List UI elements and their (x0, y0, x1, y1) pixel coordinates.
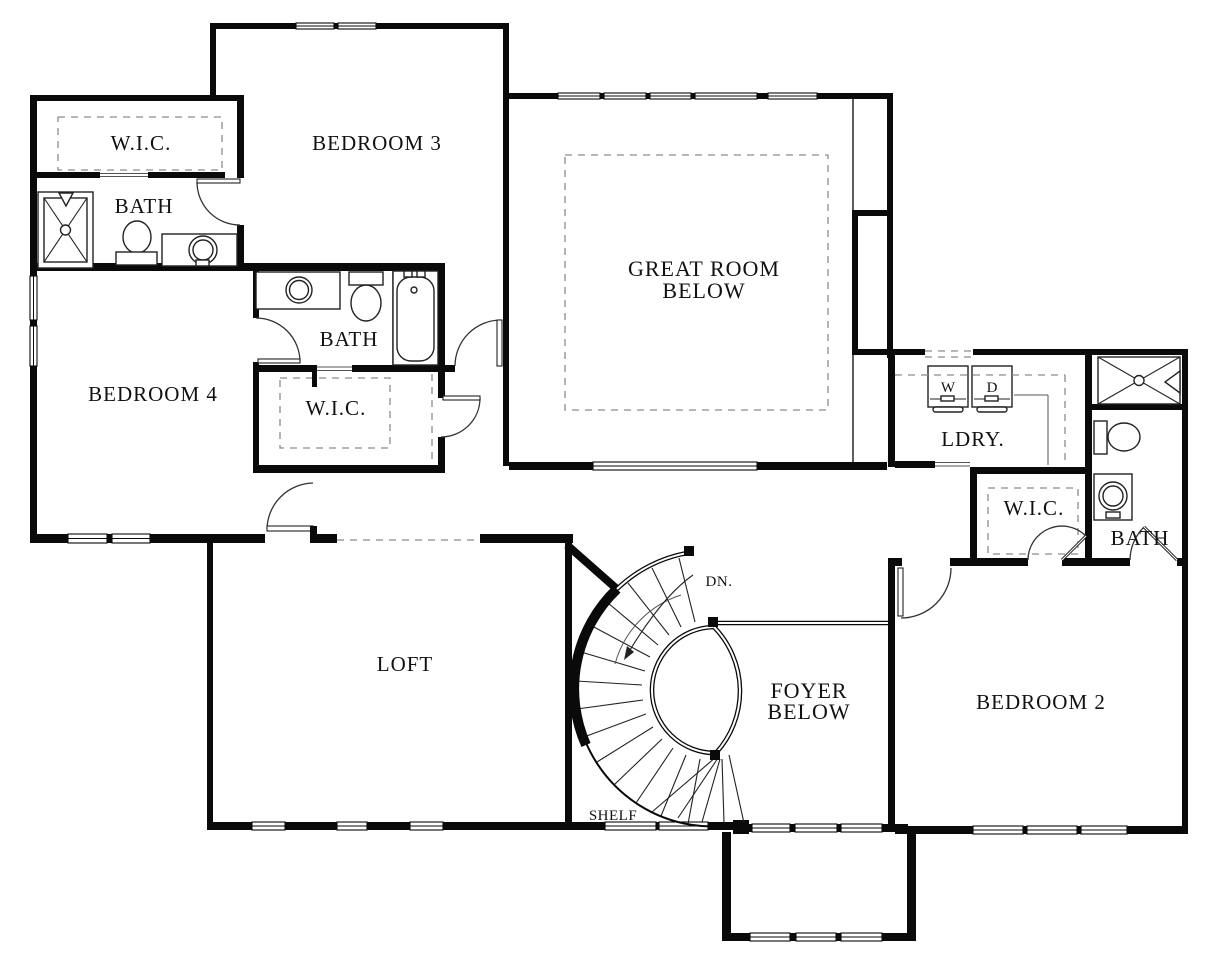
bathtub-icon (393, 271, 438, 365)
shower-right-icon (1098, 357, 1180, 404)
sink-top-left-icon (162, 234, 237, 266)
bay-windows (750, 933, 882, 941)
walls (30, 23, 1188, 941)
door-hall-by-tub (455, 320, 502, 366)
label-bath-right: BATH (1111, 526, 1170, 550)
label-washer: W (941, 380, 956, 396)
label-bedroom4: BEDROOM 4 (88, 382, 218, 406)
toilet-middle-icon (349, 272, 383, 321)
toilet-top-left-icon (116, 221, 157, 265)
label-bath-top-left: BATH (115, 194, 174, 218)
label-wic-middle: W.I.C. (306, 396, 367, 420)
stair-outer-arc (575, 553, 744, 827)
sink-right-icon (1094, 474, 1132, 520)
toilet-right-icon (1094, 421, 1140, 454)
label-shelf: SHELF (589, 808, 637, 824)
label-bedroom2: BEDROOM 2 (976, 690, 1106, 714)
door-loft-to-bedroom4 (267, 483, 317, 543)
label-laundry: LDRY. (941, 427, 1005, 451)
bedroom4-windows (30, 276, 150, 543)
label-foyer-line2: BELOW (767, 699, 850, 724)
label-loft: LOFT (377, 652, 434, 676)
label-great-room-line2: BELOW (662, 278, 745, 303)
windows (30, 23, 1127, 941)
stair-treads (576, 558, 744, 824)
door-wic-middle (441, 396, 480, 437)
door-bedroom3-to-bath (197, 179, 240, 225)
stair-curved-wall (574, 589, 617, 745)
stair-post-top (684, 546, 694, 556)
sink-middle-icon (256, 272, 340, 309)
label-bath-middle: BATH (320, 327, 379, 351)
door-bedroom4-to-bath-middle (256, 318, 300, 363)
door-bedroom2 (898, 568, 951, 618)
floor-plan-canvas: W.I.C. BATH BEDROOM 3 GREAT ROOM BELOW B… (0, 0, 1217, 969)
label-dryer: D (987, 380, 998, 396)
bedroom2-windows (973, 826, 1127, 834)
loft-windows (252, 822, 443, 830)
label-wic-right: W.I.C. (1004, 496, 1065, 520)
door-wic-right (1028, 526, 1086, 560)
floor-plan-page: W.I.C. BATH BEDROOM 3 GREAT ROOM BELOW B… (0, 0, 1217, 969)
foyer-windows (752, 824, 882, 832)
shower-top-left-icon (38, 192, 93, 268)
stair-diagonal-wall (567, 545, 618, 590)
label-bedroom3: BEDROOM 3 (312, 131, 442, 155)
label-stairs-down: DN. (706, 574, 733, 590)
great-room-overlook-railing (593, 462, 757, 470)
label-wic-top-left: W.I.C. (111, 131, 172, 155)
stair-post-mid (708, 617, 718, 627)
stair-down-arrow (624, 575, 693, 660)
great-room-windows (558, 93, 817, 99)
stair-post-bottom (710, 750, 720, 760)
